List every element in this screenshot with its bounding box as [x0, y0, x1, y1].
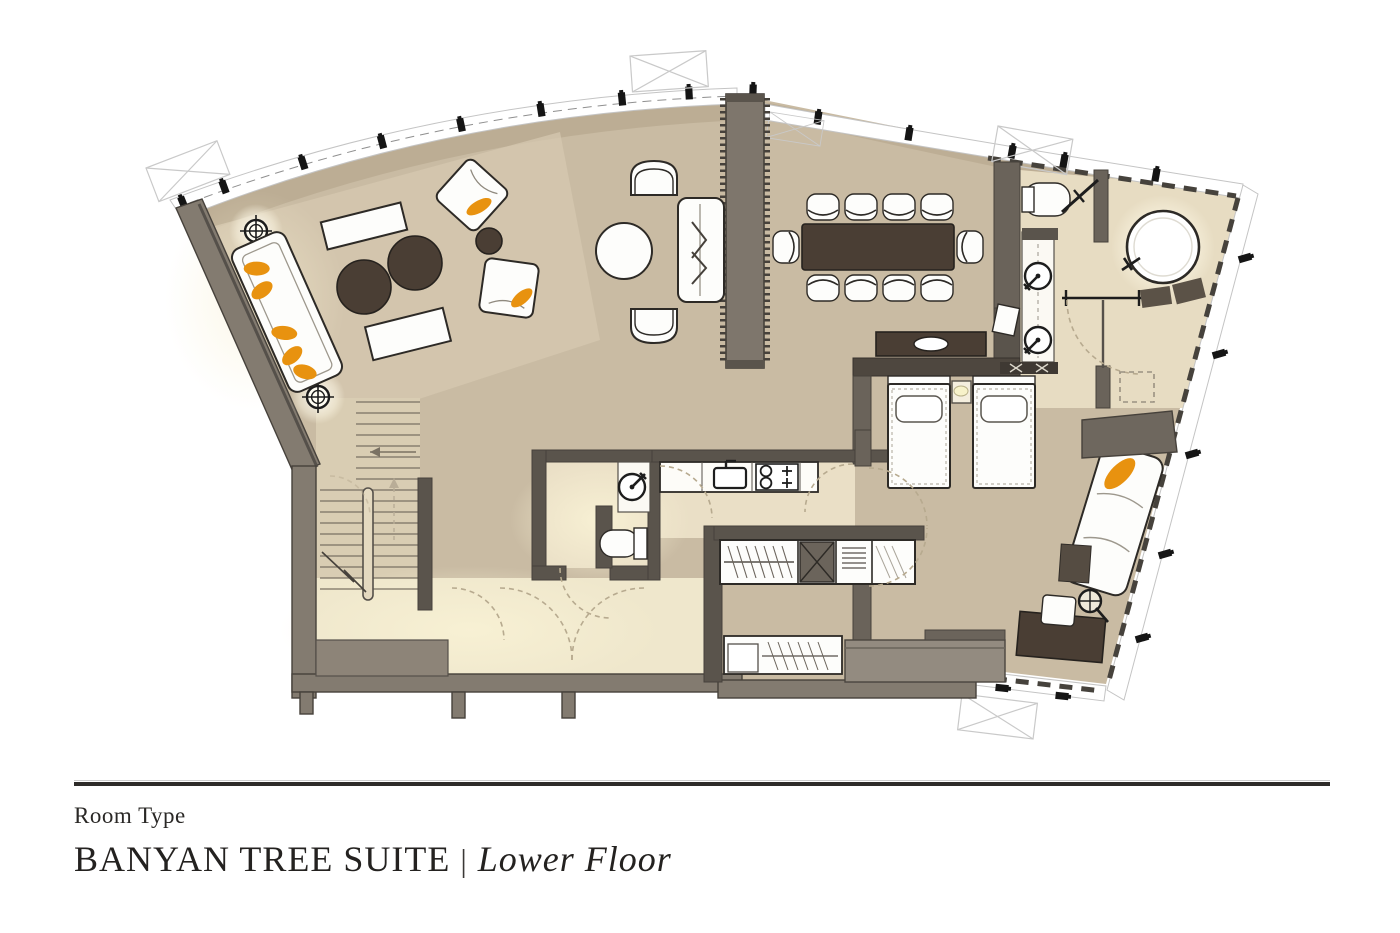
floor-label: Lower Floor — [478, 839, 672, 879]
kitchen — [660, 461, 818, 492]
tv-partition-wall — [723, 94, 767, 368]
page: Room Type BANYAN TREE SUITE|Lower Floor — [0, 0, 1400, 933]
vanity-sink — [1024, 327, 1051, 354]
side-table — [476, 228, 502, 254]
side-table — [1059, 544, 1092, 583]
stair-stringer — [363, 488, 373, 600]
dining-chair — [883, 275, 915, 301]
stair-landing — [316, 640, 448, 676]
bathroom-west-wall — [994, 162, 1020, 308]
wardrobe-shaft — [800, 542, 834, 582]
wall-stub — [452, 692, 465, 718]
armchair — [479, 258, 540, 319]
lounge-chair — [631, 309, 677, 343]
title-separator: | — [450, 842, 477, 878]
wardrobe — [720, 540, 915, 584]
bed-headboard-wall — [853, 358, 1020, 376]
title-block: Room Type BANYAN TREE SUITE|Lower Floor — [74, 780, 1330, 880]
round-table — [596, 223, 652, 279]
left-wall — [292, 466, 316, 698]
floor-plan-figure — [0, 0, 1400, 770]
powder-left-wall — [532, 450, 546, 580]
dining-table — [802, 224, 954, 270]
suite-title: BANYAN TREE SUITE|Lower Floor — [74, 838, 1330, 880]
nightstand — [952, 381, 971, 403]
desk-chair — [1041, 595, 1076, 627]
floor-plan — [0, 0, 1400, 770]
wall-stub — [300, 692, 313, 714]
wardrobe-back-wall — [714, 526, 924, 540]
safe — [728, 644, 758, 672]
suite-name: BANYAN TREE SUITE — [74, 839, 450, 879]
bottom-wall-right — [718, 680, 976, 698]
dining-chair — [921, 194, 953, 220]
luggage-rack — [1000, 362, 1058, 374]
dining-chair — [773, 231, 799, 263]
twin-bed — [973, 376, 1035, 488]
dining-chair — [921, 275, 953, 301]
lounge-chair — [631, 161, 677, 195]
luggage-closet — [724, 636, 842, 674]
dining-chair — [807, 275, 839, 301]
divider-line — [74, 780, 1330, 787]
dining-chair — [845, 275, 877, 301]
dining-chair — [845, 194, 877, 220]
console-table — [876, 332, 986, 356]
minibar-shelf — [992, 304, 1019, 336]
wall-stub — [562, 692, 575, 718]
dining-chair — [957, 231, 983, 263]
vanity-sink — [1024, 263, 1051, 290]
kitchen-east-wall — [855, 430, 871, 466]
bathroom-wall-stub — [1096, 366, 1110, 408]
kitchen-back-wall — [648, 450, 888, 462]
dining-chair — [807, 194, 839, 220]
stove — [756, 464, 798, 490]
coffee-table — [388, 236, 442, 290]
powder-toilet — [600, 528, 647, 559]
dining-chair — [883, 194, 915, 220]
storage-cabinet — [1082, 411, 1177, 458]
bathtub — [1127, 211, 1199, 283]
stair-wall — [418, 478, 432, 610]
bottom-wall — [292, 674, 742, 692]
room-type-label: Room Type — [74, 803, 1330, 829]
loveseat — [678, 198, 724, 302]
powder-sink — [619, 473, 646, 500]
coffee-table — [337, 260, 391, 314]
powder-top-wall — [532, 450, 652, 462]
twin-bed — [888, 376, 950, 488]
